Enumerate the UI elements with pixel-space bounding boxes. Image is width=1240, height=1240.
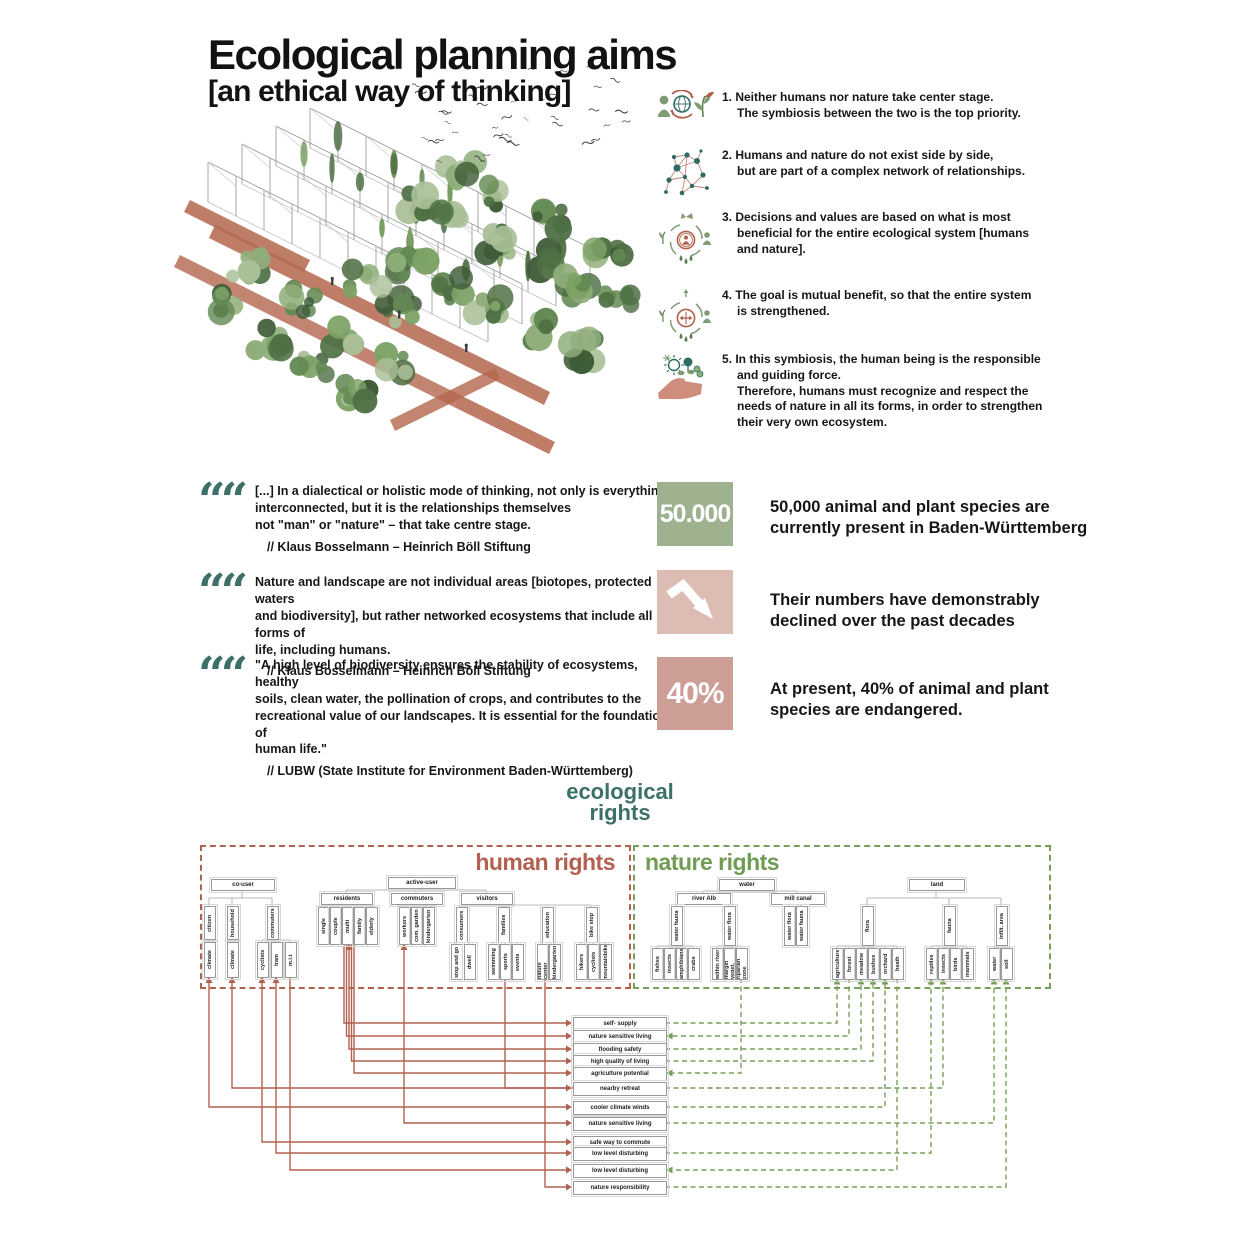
- stat-box-decline: [657, 570, 733, 634]
- relation-box: nature responsibility: [573, 1181, 667, 1195]
- tree-node: mammals: [962, 948, 974, 980]
- quote-3: ““ "A high level of biodiversity ensures…: [198, 657, 675, 778]
- tree-node: mill canal: [771, 893, 825, 905]
- principle-1: 1. Neither humans nor nature take center…: [650, 90, 1217, 124]
- tree-node: household: [227, 906, 239, 940]
- tree-node: cyclists: [588, 944, 600, 980]
- tree-node: land: [909, 879, 965, 891]
- tree-node: stop and go: [451, 944, 463, 980]
- tree-node: water fauna: [796, 906, 808, 946]
- tree-node: amphibians: [676, 948, 688, 980]
- ecological-rights-title: ecological rights: [520, 782, 720, 824]
- relation-box: cooler climate winds: [573, 1101, 667, 1115]
- tree-node: climate: [227, 942, 239, 978]
- tree-node: hikers: [576, 944, 588, 980]
- tree-node: sports: [500, 944, 512, 980]
- principle-4: 4. The goal is mutual benefit, so that t…: [650, 288, 1217, 346]
- principle-5: 5. In this symbiosis, the human being is…: [650, 352, 1217, 431]
- tree-node: flora: [862, 906, 874, 946]
- tree-node: reptiles: [926, 948, 938, 980]
- tree-node: riparian zone: [736, 948, 748, 980]
- tree-node: insects: [664, 948, 676, 980]
- tree-node: education: [542, 907, 554, 943]
- tree-node: single: [318, 907, 330, 945]
- tree-node: active-user: [388, 877, 456, 889]
- page-title: Ecological planning aims: [208, 34, 676, 76]
- tree-node: soil: [1001, 948, 1013, 980]
- principle-text: 3. Decisions and values are based on wha…: [722, 210, 1217, 257]
- tree-node: orchard: [880, 948, 892, 980]
- tree-node: birds: [950, 948, 962, 980]
- tree-node: water fauna: [671, 906, 683, 946]
- tree-node: bike stop: [586, 907, 598, 943]
- tree-node: fishes: [652, 948, 664, 980]
- tree-node: com. garden: [411, 907, 423, 945]
- quote-mark-icon: ““: [198, 568, 243, 616]
- principle-text: 2. Humans and nature do not exist side b…: [722, 148, 1217, 180]
- tree-node: co-user: [211, 879, 275, 891]
- tree-node: residents: [321, 893, 373, 905]
- tree-node: tram: [271, 942, 283, 978]
- principle-text: 1. Neither humans nor nature take center…: [722, 90, 1217, 122]
- tree-node: heath: [892, 948, 904, 980]
- tree-node: couple: [330, 907, 342, 945]
- tree-node: water: [719, 879, 775, 891]
- ecosystem-evaluation-icon: [650, 210, 722, 268]
- tree-node: swimming: [488, 944, 500, 980]
- quote-text: Nature and landscape are not individual …: [255, 574, 675, 658]
- tree-node: climate: [204, 942, 216, 978]
- tree-node: water flora: [784, 906, 796, 946]
- tree-node: water: [989, 948, 1001, 980]
- tree-node: elderly: [366, 907, 378, 945]
- tree-node: crabs: [688, 948, 700, 980]
- nature-rights-label: nature rights: [645, 849, 779, 876]
- trend-down-arrow-icon: [657, 570, 733, 634]
- quote-text: "A high level of biodiversity ensures th…: [255, 657, 675, 758]
- principle-2: 2. Humans and nature do not exist side b…: [650, 148, 1217, 200]
- stat-text-species: 50,000 animal and plant species are curr…: [770, 497, 1087, 540]
- tree-node: dwell: [464, 944, 476, 980]
- tree-node: commuters: [267, 906, 279, 940]
- stat-text-endangered: At present, 40% of animal and plant spec…: [770, 679, 1049, 722]
- tree-node: within river: [712, 948, 724, 980]
- tree-node: kindergarten: [423, 907, 435, 945]
- tree-node: margin veget.: [724, 948, 736, 980]
- stat-value: 40%: [666, 677, 723, 711]
- greenhouse-illustration: [160, 50, 660, 480]
- tree-node: visitors: [461, 893, 513, 905]
- tree-node: m.i.t: [285, 942, 297, 978]
- tree-node: families: [498, 907, 510, 943]
- quote-mark-icon: ““: [198, 651, 243, 699]
- relation-box: nearby retreat: [573, 1082, 667, 1096]
- network-icon: [650, 148, 722, 200]
- quote-attribution: // Klaus Bosselmann – Heinrich Böll Stif…: [267, 540, 675, 554]
- human-rights-label: human rights: [365, 849, 615, 876]
- stat-text-decline: Their numbers have demonstrably declined…: [770, 590, 1040, 633]
- tree-node: water flora: [724, 906, 736, 946]
- tree-node: workers: [399, 907, 411, 945]
- tree-node: agriculture: [832, 948, 844, 980]
- tree-node: bushes: [868, 948, 880, 980]
- tree-node: meadow: [856, 948, 868, 980]
- tree-node: multi: [342, 907, 354, 945]
- tree-node: commuters: [391, 893, 443, 905]
- relation-box: agriculture potential: [573, 1067, 667, 1081]
- principle-3: 3. Decisions and values are based on wha…: [650, 210, 1217, 268]
- relation-box: nature sensitive living: [573, 1030, 667, 1044]
- tree-node: insects: [938, 948, 950, 980]
- relation-box: low level disturbing: [573, 1164, 667, 1178]
- tree-node: consumers: [456, 907, 468, 943]
- tree-node: fauna: [944, 906, 956, 946]
- poster: Ecological planning aims [an ethical way…: [0, 0, 1240, 1240]
- stat-box-species: 50.000: [657, 482, 733, 546]
- title-block: Ecological planning aims [an ethical way…: [208, 34, 676, 107]
- quote-mark-icon: ““: [198, 477, 243, 525]
- tree-node: kindergarten: [549, 944, 561, 980]
- mutual-benefit-icon: [650, 288, 722, 346]
- relation-box: low level disturbing: [573, 1147, 667, 1161]
- page-subtitle: [an ethical way of thinking]: [208, 77, 676, 107]
- quote-1: ““ [...] In a dialectical or holistic mo…: [198, 483, 675, 554]
- tree-node: family: [354, 907, 366, 945]
- tree-node: river Alb: [677, 893, 731, 905]
- quote-attribution: // LUBW (State Institute for Environment…: [267, 764, 675, 778]
- quote-text: [...] In a dialectical or holistic mode …: [255, 483, 675, 534]
- stat-box-endangered: 40%: [657, 657, 733, 730]
- tree-node: forest: [844, 948, 856, 980]
- principle-text: 4. The goal is mutual benefit, so that t…: [722, 288, 1217, 320]
- relation-box: self- supply: [573, 1017, 667, 1031]
- tree-node: citizen: [204, 906, 216, 940]
- tree-node: cyclists: [257, 942, 269, 978]
- principle-text: 5. In this symbiosis, the human being is…: [722, 352, 1217, 431]
- tree-node: mountainbike: [600, 944, 612, 980]
- responsibility-hand-icon: [650, 352, 722, 404]
- stat-value: 50.000: [660, 500, 730, 529]
- relation-box: nature sensitive living: [573, 1117, 667, 1131]
- tree-node: nature center: [537, 944, 549, 980]
- tree-node: events: [512, 944, 524, 980]
- tree-node: infilt. area: [996, 906, 1008, 946]
